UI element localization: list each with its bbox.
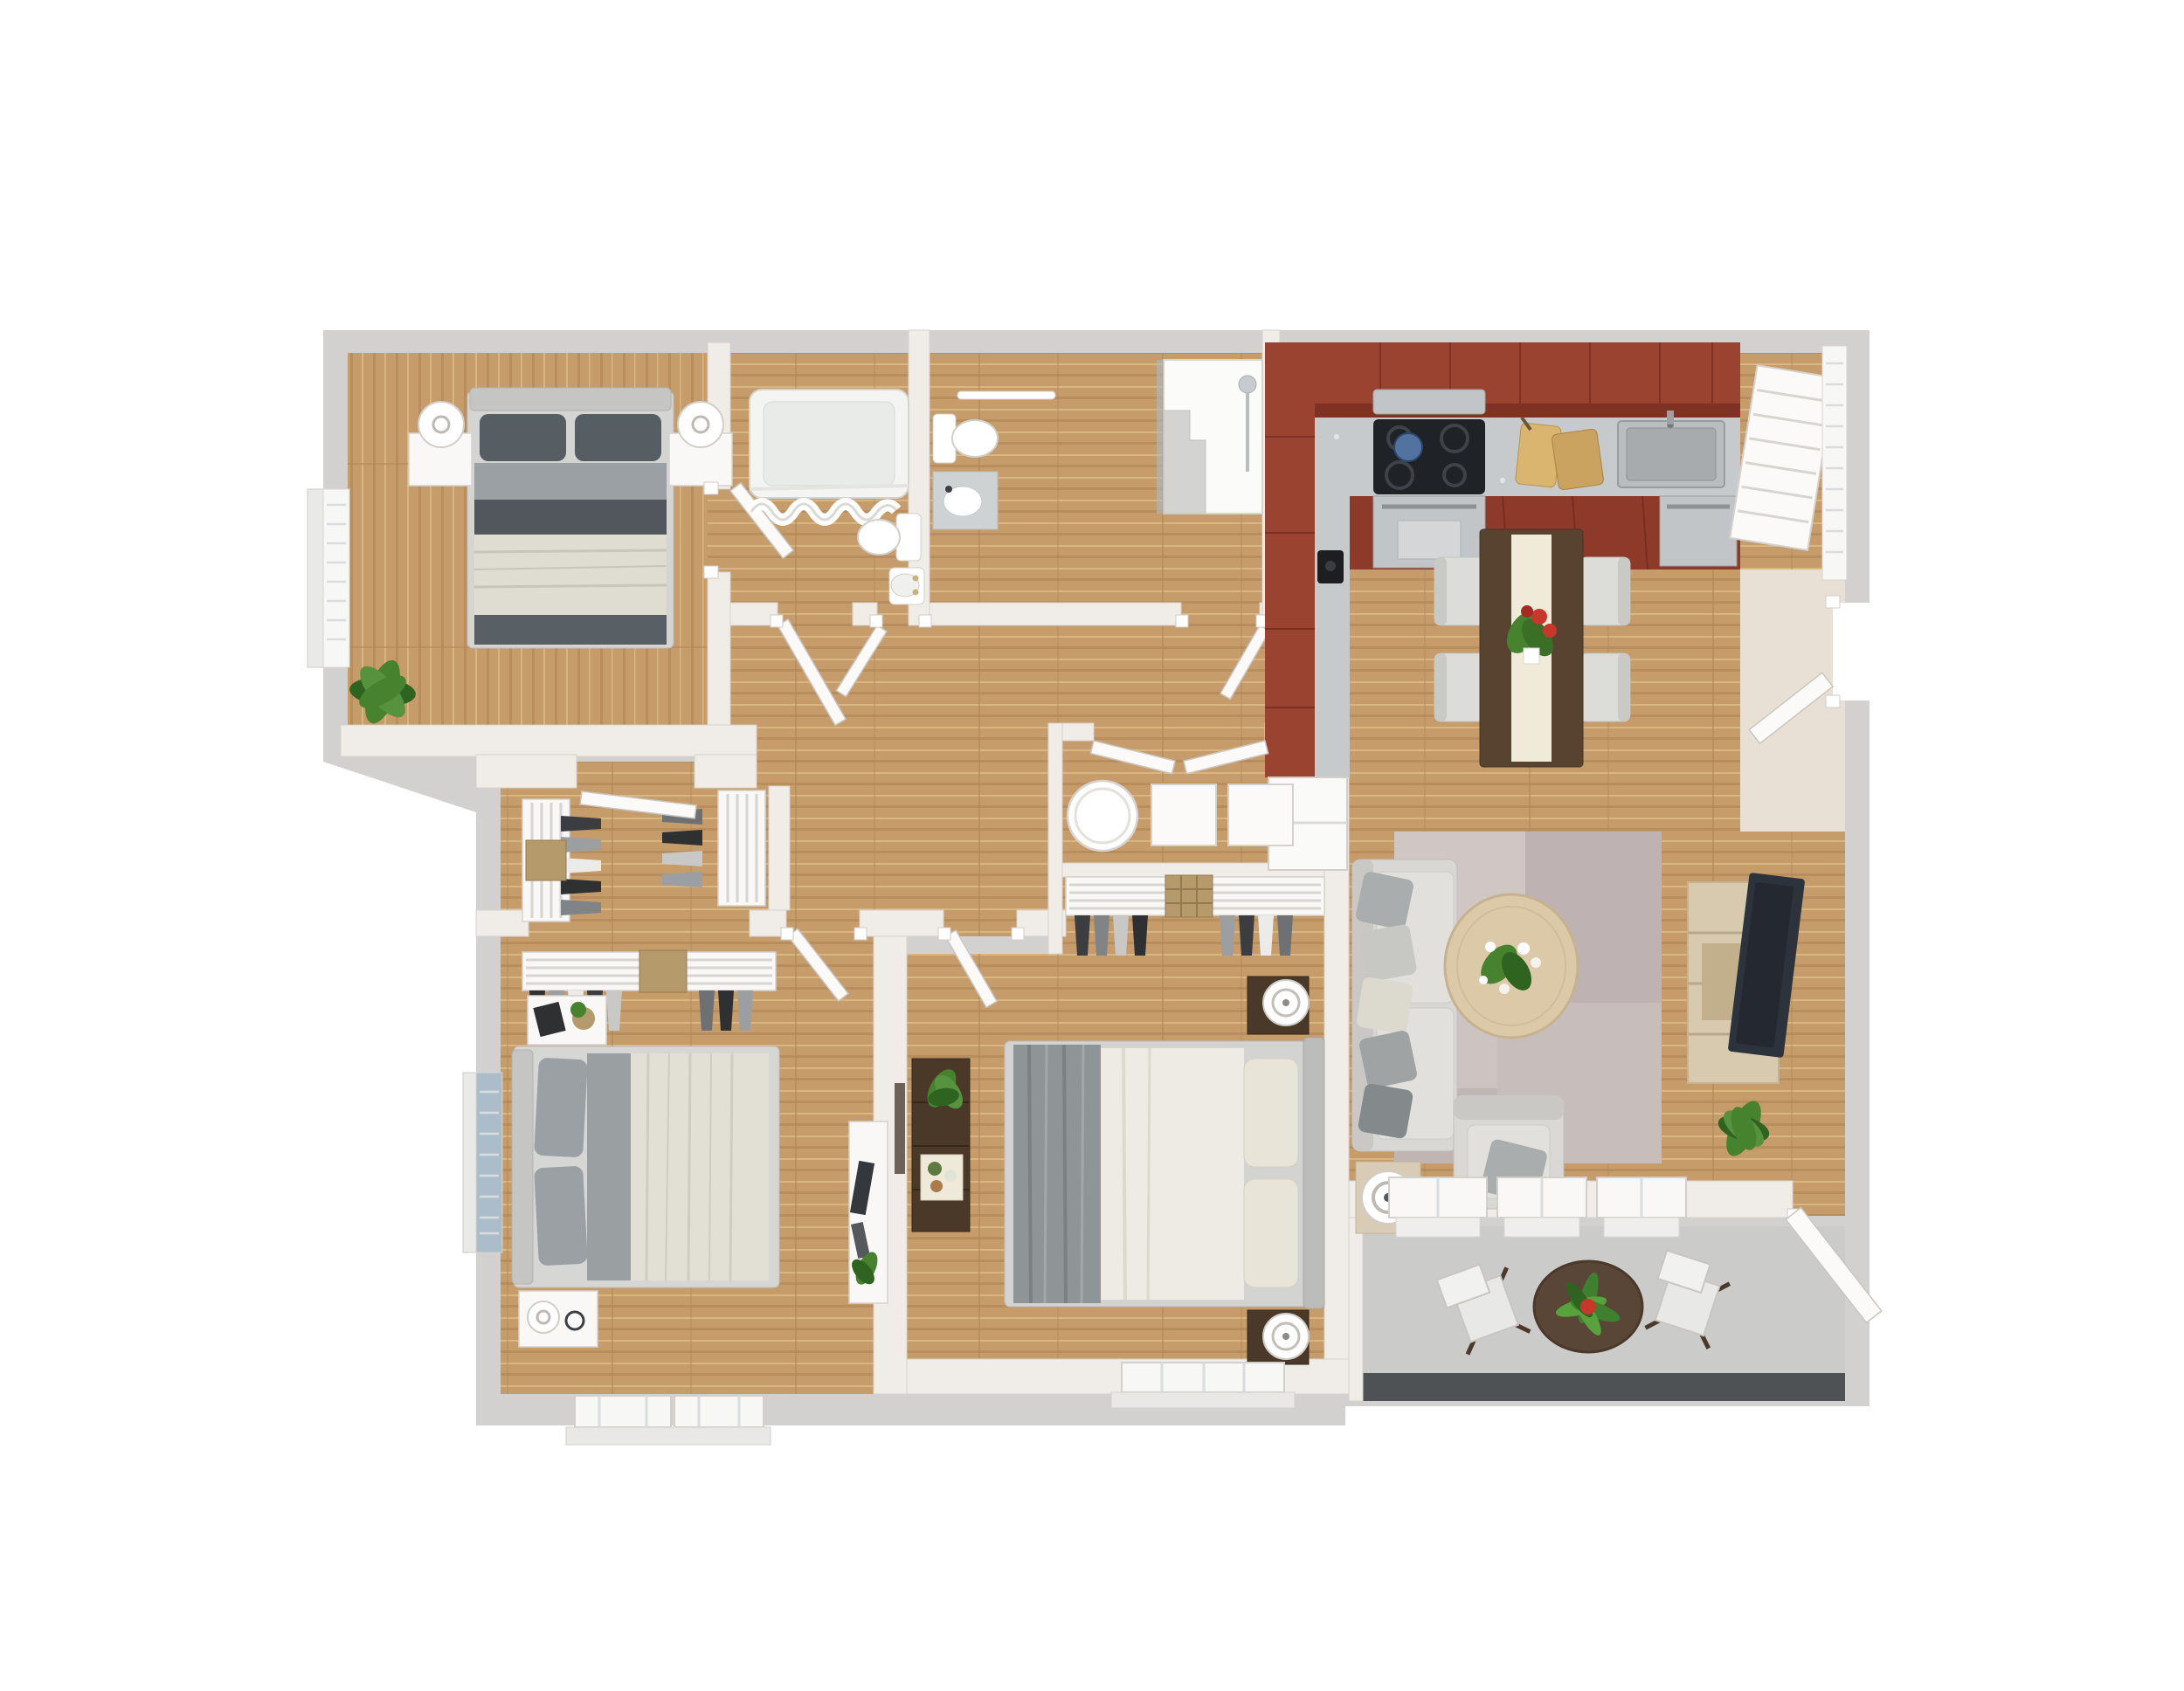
floor-plan-image (0, 0, 2184, 1691)
kettle-icon (1394, 433, 1422, 461)
dresser (912, 1059, 970, 1232)
cooktop-icon (1373, 419, 1485, 494)
basket-icon (639, 950, 687, 992)
basket-icon (526, 840, 566, 880)
towel-bar (957, 391, 1055, 399)
glass-panel (1157, 360, 1164, 514)
patio-edge-strip (1363, 1373, 1845, 1401)
walk-in-shower (1157, 360, 1262, 514)
floor-plan-svg (0, 0, 2184, 1691)
entry-opening (1833, 603, 1870, 701)
microwave-icon (1373, 390, 1485, 414)
dryer-icon (1228, 784, 1293, 845)
nightstand (528, 996, 606, 1045)
window-icon (1111, 1363, 1295, 1408)
kitchen-window-blinds (1822, 346, 1847, 580)
coffee-maker-icon (1317, 550, 1344, 583)
kitchen-sink-icon (1618, 411, 1724, 487)
pedestal-sink-icon (889, 568, 924, 604)
media-console (847, 1122, 888, 1303)
basket-icon (1165, 875, 1213, 917)
water-heater-icon (1068, 781, 1137, 851)
double-bed (1005, 1038, 1324, 1308)
window-icon (566, 1396, 771, 1445)
nightstand (1248, 977, 1309, 1034)
double-bed (512, 1046, 779, 1287)
double-bed (467, 388, 674, 648)
wall-art-icon (895, 1083, 905, 1174)
window-icon (1389, 1177, 1487, 1237)
window-icon (1497, 1177, 1586, 1237)
window-icon (308, 489, 349, 667)
nightstand (1248, 1310, 1309, 1364)
sofa (1352, 859, 1457, 1151)
coffee-table (1445, 894, 1578, 1038)
shower-head-icon (1239, 376, 1256, 393)
vanity-sink (933, 472, 998, 529)
table-lamp-icon (678, 402, 723, 447)
tray (921, 1155, 963, 1200)
window-icon (463, 1073, 502, 1253)
bistro-table (1534, 1261, 1642, 1352)
left-run-red (1265, 342, 1315, 777)
nightstand (519, 1291, 598, 1347)
window-icon (1597, 1177, 1686, 1237)
washer-icon (1151, 784, 1216, 845)
left-run-counter (1315, 496, 1350, 777)
table-lamp-icon (418, 402, 464, 447)
